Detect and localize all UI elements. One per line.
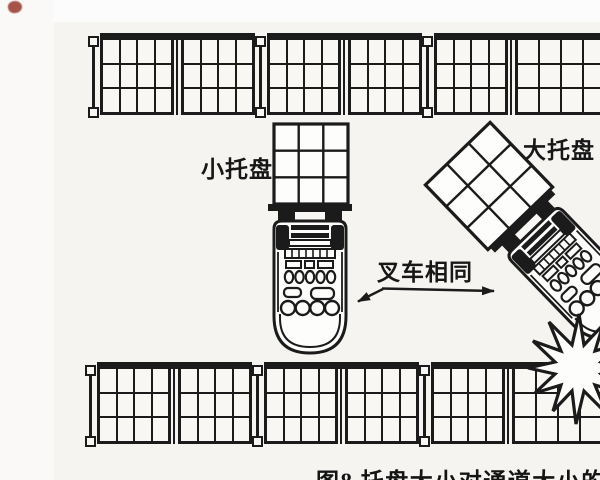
forklift-straight — [268, 204, 352, 353]
small-pallet — [274, 124, 348, 204]
large-pallet-forklift-group — [425, 122, 600, 356]
callout-arrow-icon — [358, 289, 494, 302]
diagram-artwork — [0, 0, 600, 480]
scanned-figure-page: 小托盘 大托盘 叉车相同 图8 托盘大小对通道大小的影响 — [0, 0, 600, 480]
